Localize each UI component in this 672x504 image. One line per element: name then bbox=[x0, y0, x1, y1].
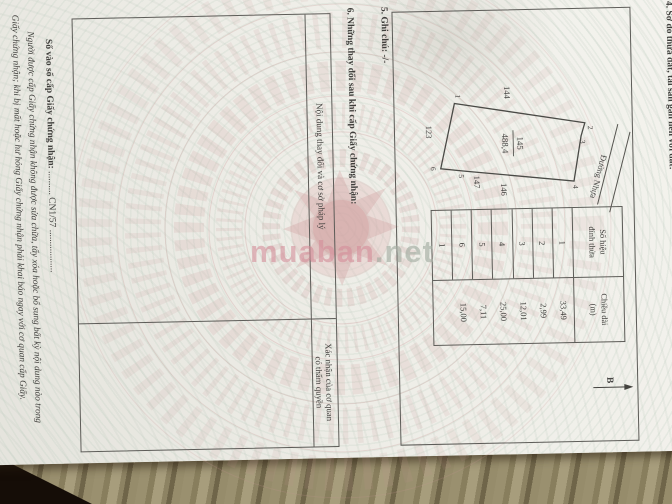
watermark-brand: muaban bbox=[250, 234, 375, 269]
section4-title: 4. Sơ đồ thửa đất, tài sản gắn liền với … bbox=[663, 1, 672, 170]
length-cell: 25,00 bbox=[493, 279, 514, 343]
vertex-number-column: 1 2 3 4 5 6 1 bbox=[432, 208, 573, 281]
adjacent-parcel-123: 123 bbox=[424, 126, 434, 139]
road-label: Đường Nhựa bbox=[588, 154, 609, 200]
vertex-cell: 4 bbox=[492, 209, 514, 278]
serial-trailing-dots: .................. bbox=[47, 230, 58, 273]
changes-col2-header: Xác nhận của cơ quan có thẩm quyền bbox=[311, 319, 338, 445]
col-header-vertex-line2: đỉnh thửa bbox=[586, 226, 598, 258]
changes-table: Nội dung thay đổi và cơ sở pháp lý Xác n… bbox=[72, 13, 340, 452]
section5-note: 5. Ghi chú: -/- bbox=[378, 7, 389, 64]
changes-col2: Xác nhận của cơ quan có thẩm quyền bbox=[79, 318, 339, 450]
serial-value: CN1/57 bbox=[46, 197, 57, 227]
col-header-length-line2: (m) bbox=[588, 304, 599, 316]
col-header-length-line1: Chiều dài bbox=[599, 293, 611, 325]
serial-label: Số vào sổ cấp Giấy chứng nhận: bbox=[43, 39, 56, 169]
north-label: B bbox=[604, 377, 614, 384]
vertex-label-3: 3 bbox=[578, 140, 587, 144]
length-cell: 33,49 bbox=[553, 278, 574, 342]
north-arrow-icon: B bbox=[593, 376, 633, 390]
length-cell: 2,99 bbox=[533, 278, 554, 342]
vertex-cell: 3 bbox=[512, 209, 534, 278]
parcel-polygon bbox=[439, 101, 586, 184]
parcel-area: 488,4 bbox=[500, 133, 510, 154]
section6-title: 6. Những thay đổi sau khi cấp Giấy chứng… bbox=[344, 8, 358, 205]
vertex-cell: 1 bbox=[432, 211, 454, 280]
vertex-label-5: 5 bbox=[457, 174, 466, 178]
watermark-suffix: .net bbox=[375, 234, 434, 269]
length-cell: 7,11 bbox=[473, 280, 494, 344]
changes-col1-header: Nội dung thay đổi và cơ sở pháp lý bbox=[305, 14, 335, 318]
vertex-cell: 6 bbox=[452, 210, 474, 279]
adjacent-parcel-146: 146 bbox=[499, 183, 509, 196]
vertex-cell: 5 bbox=[472, 210, 494, 279]
col-header-vertex-line1: Số hiệu bbox=[598, 229, 610, 254]
vertex-table-header: Số hiệu đỉnh thửa Chiều dài (m) bbox=[572, 207, 625, 342]
adjacent-parcel-147: 147 bbox=[472, 176, 482, 189]
vertex-cell: 2 bbox=[532, 208, 554, 277]
changes-col2-header-line2: có thẩm quyền bbox=[313, 356, 325, 408]
serial-dots: .......... bbox=[46, 171, 56, 195]
photo-land-certificate: 4. Sơ đồ thửa đất, tài sản gắn liền với … bbox=[0, 0, 672, 504]
vertex-cell: 1 bbox=[552, 208, 573, 277]
vertex-label-4: 4 bbox=[571, 185, 580, 189]
vertex-length-table: Số hiệu đỉnh thửa Chiều dài (m) 1 2 3 bbox=[431, 206, 626, 346]
serial-number-line: Số vào sổ cấp Giấy chứng nhận: .........… bbox=[43, 39, 58, 273]
changes-col2-header-line1: Xác nhận của cơ quan bbox=[323, 343, 335, 421]
edge-length-column: 33,49 2,99 12,01 25,00 7,11 15,00 bbox=[433, 278, 574, 345]
site-watermark: muaban.net bbox=[250, 234, 434, 270]
footer-note-line1: Người được cấp Giấy chứng nhận không đượ… bbox=[25, 31, 43, 423]
adjacent-parcel-144: 144 bbox=[502, 86, 512, 100]
length-cell-empty bbox=[433, 281, 454, 345]
length-cell: 15,00 bbox=[453, 280, 474, 344]
vertex-label-6: 6 bbox=[429, 167, 438, 171]
length-cell: 12,01 bbox=[513, 279, 534, 343]
vertex-label-2: 2 bbox=[586, 126, 595, 130]
vertex-label-1: 1 bbox=[453, 94, 462, 98]
parcel-number: 145 bbox=[515, 136, 525, 150]
